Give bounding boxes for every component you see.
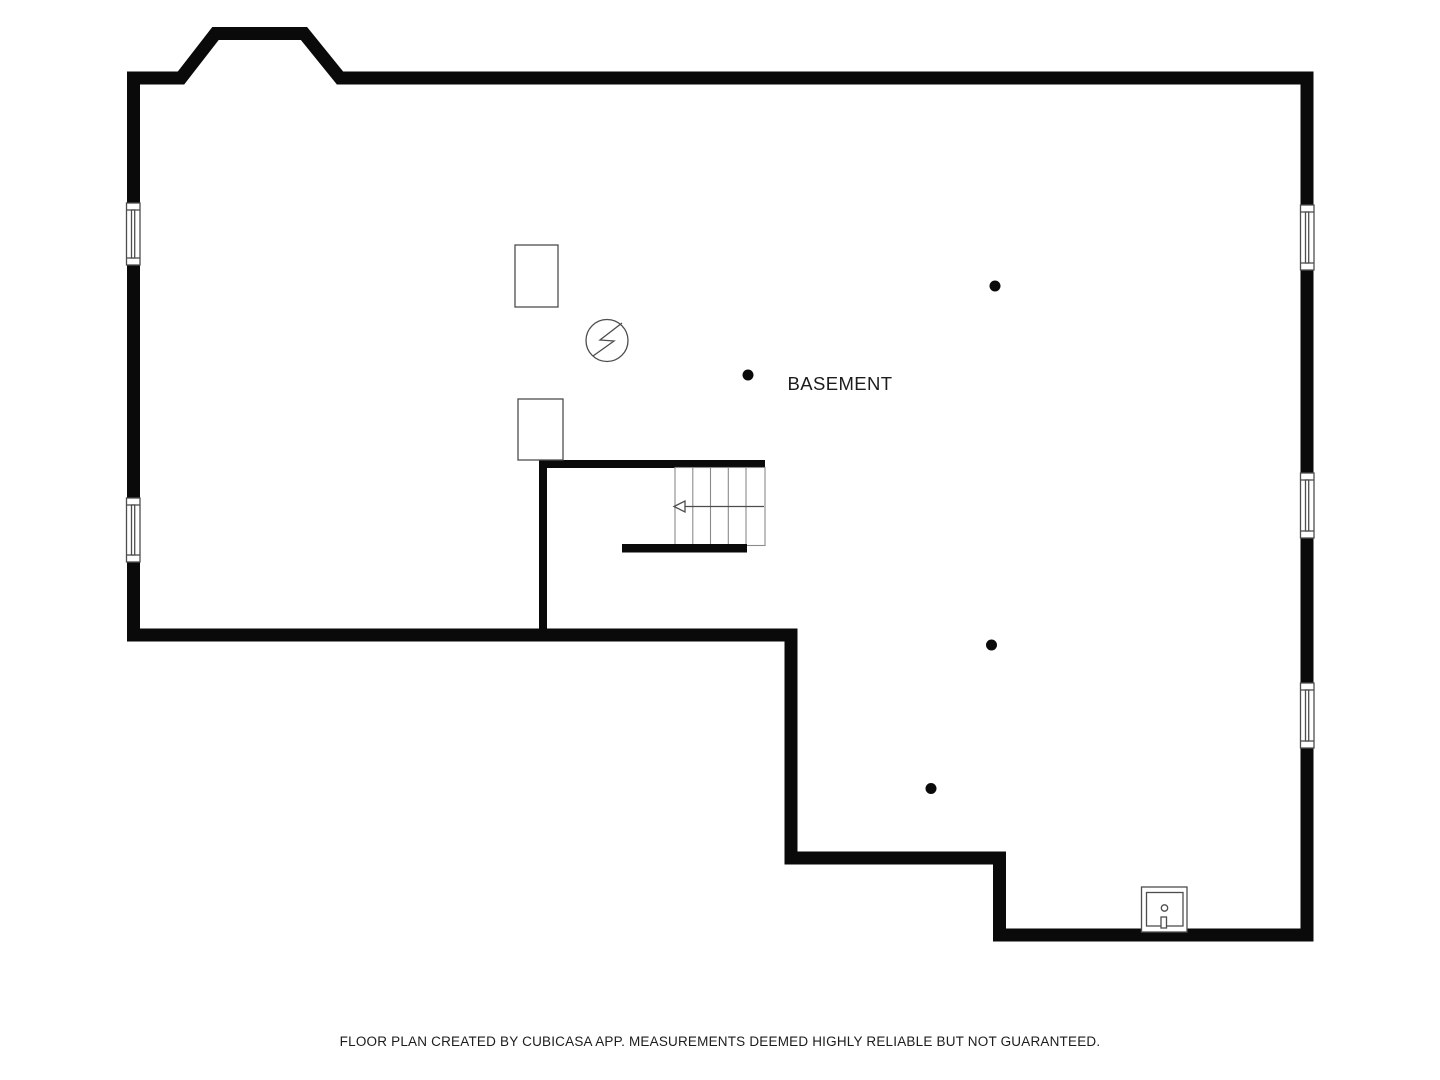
appliance-box-1 <box>515 245 558 307</box>
support-post-dot <box>743 370 754 381</box>
window-symbol <box>127 498 141 562</box>
floor-plan-drawing <box>0 0 1440 1080</box>
staircase <box>622 468 765 553</box>
window-symbol <box>1301 205 1315 270</box>
sump-pump-symbol <box>1142 887 1188 932</box>
window-symbol <box>1301 473 1315 538</box>
electrical-panel-icon <box>586 320 628 362</box>
window-symbol <box>127 203 141 265</box>
floor-plan-page: BASEMENT FLOOR PLAN CREATED BY CUBICASA … <box>0 0 1440 1080</box>
room-label: BASEMENT <box>788 374 893 394</box>
support-post-dot <box>926 783 937 794</box>
footer-disclaimer: FLOOR PLAN CREATED BY CUBICASA APP. MEAS… <box>0 1035 1440 1050</box>
window-symbol <box>1301 683 1315 748</box>
support-post-dot <box>986 640 997 651</box>
appliance-box-2 <box>518 399 563 460</box>
stair-landing-wall <box>622 544 747 553</box>
interior-wall-vertical <box>539 460 547 641</box>
support-post-dot <box>990 281 1001 292</box>
interior-wall-horizontal <box>539 460 765 468</box>
